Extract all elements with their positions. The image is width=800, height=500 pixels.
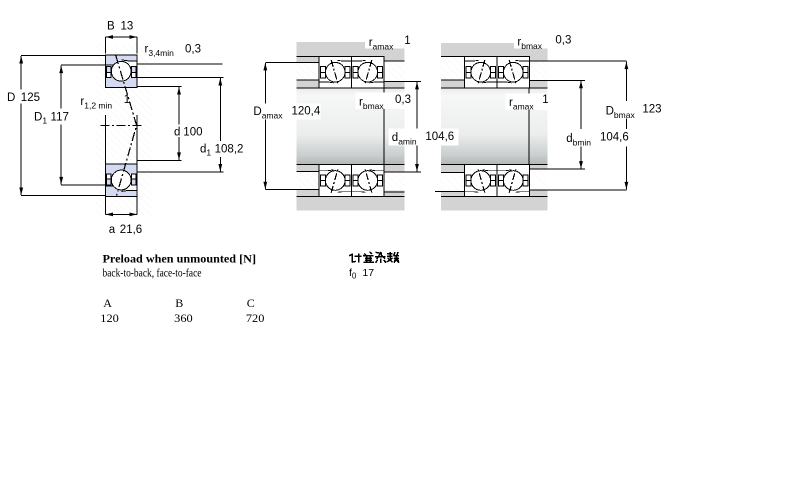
svg-text:120: 120	[100, 311, 119, 325]
svg-text:0,3: 0,3	[555, 35, 571, 47]
svg-text:d: d	[174, 126, 180, 138]
svg-text:720: 720	[246, 311, 265, 325]
svg-text:123: 123	[642, 103, 661, 115]
svg-text:1: 1	[124, 94, 130, 106]
svg-text:C: C	[247, 296, 255, 310]
svg-text:21,6: 21,6	[120, 224, 142, 236]
svg-text:104,6: 104,6	[600, 131, 629, 143]
svg-text:104,6: 104,6	[425, 131, 454, 143]
svg-text:Preload when unmounted [N]: Preload when unmounted [N]	[103, 252, 257, 266]
svg-text:a: a	[109, 224, 116, 236]
svg-text:360: 360	[174, 311, 193, 325]
svg-text:A: A	[103, 296, 112, 310]
svg-text:B: B	[107, 21, 115, 33]
svg-text:B: B	[175, 296, 183, 310]
svg-text:1: 1	[542, 94, 548, 106]
svg-text:120,4: 120,4	[292, 105, 321, 117]
svg-text:D: D	[7, 92, 15, 104]
svg-text:13: 13	[121, 21, 134, 33]
svg-text:D1117: D1117	[34, 111, 69, 125]
svg-text:0,3: 0,3	[185, 43, 201, 55]
svg-text:1: 1	[404, 35, 410, 47]
svg-text:0,3: 0,3	[395, 94, 411, 106]
svg-text:100: 100	[183, 126, 202, 138]
svg-text:f017: f017	[349, 267, 374, 281]
svg-text:back-to-back, face-to-face: back-to-back, face-to-face	[103, 267, 202, 279]
svg-text:125: 125	[21, 92, 40, 104]
